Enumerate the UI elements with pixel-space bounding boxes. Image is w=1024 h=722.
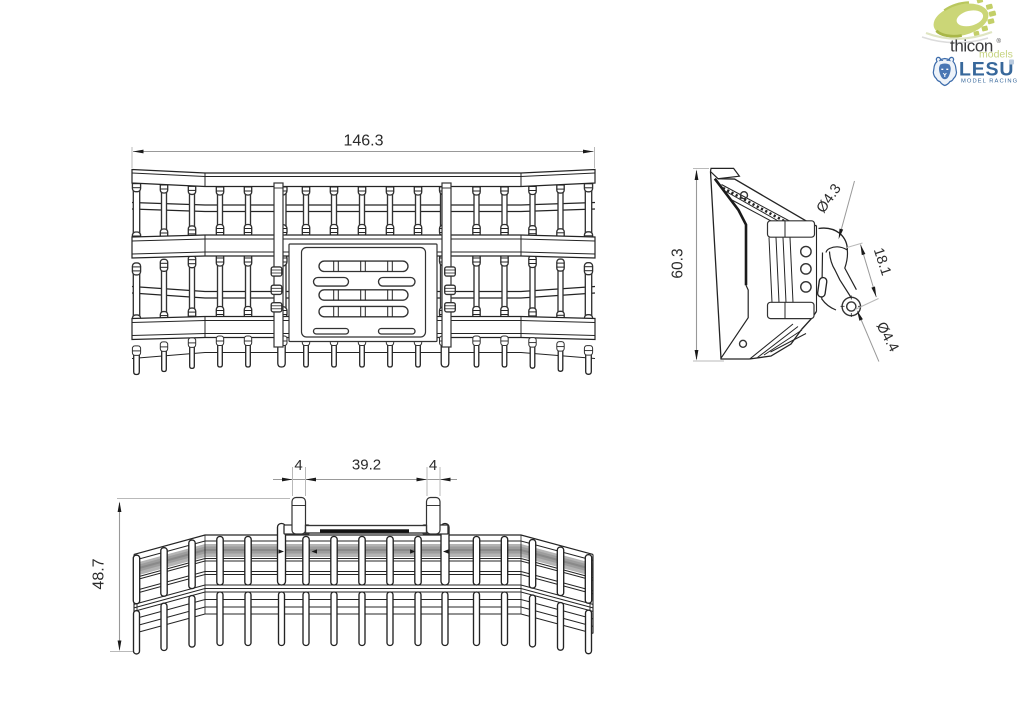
svg-text:146.3: 146.3 [343,133,383,150]
svg-text:60.3: 60.3 [670,248,687,278]
svg-text:48.7: 48.7 [91,558,108,589]
svg-text:®: ® [997,38,1002,45]
svg-text:MODEL RACING: MODEL RACING [961,79,1018,85]
svg-text:4: 4 [429,457,437,474]
svg-text:4: 4 [294,457,302,474]
svg-text:39.2: 39.2 [352,457,381,474]
svg-text:LESU: LESU [959,59,1014,81]
